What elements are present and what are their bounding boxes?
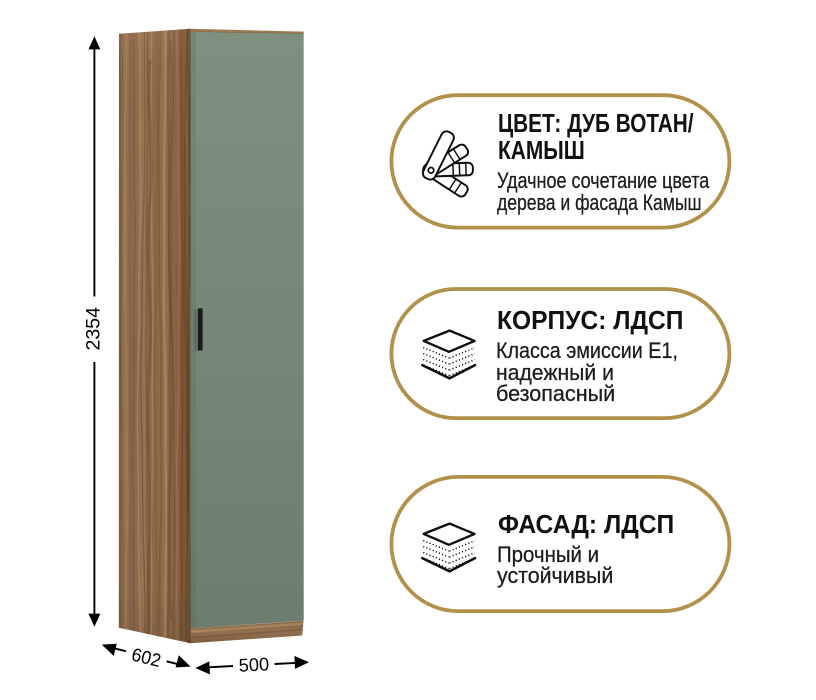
- svg-text:500: 500: [238, 653, 269, 675]
- svg-text:2354: 2354: [83, 307, 105, 351]
- svg-text:602: 602: [130, 644, 164, 672]
